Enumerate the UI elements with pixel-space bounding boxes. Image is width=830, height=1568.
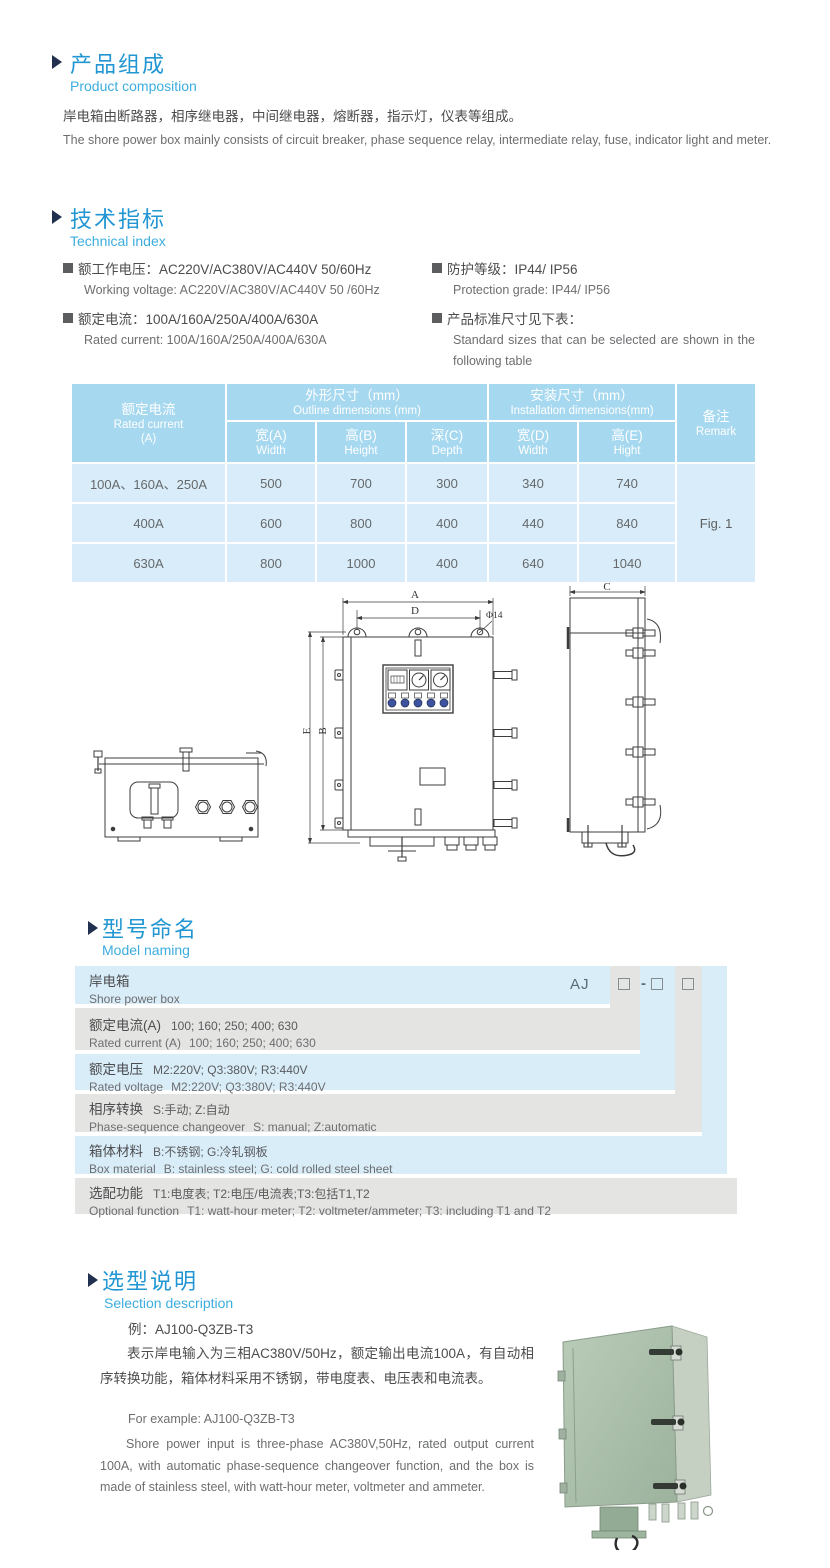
- section-title-technical-index: 技术指标: [70, 202, 166, 234]
- section-subtitle-model-naming: Model naming: [102, 942, 190, 958]
- dim-label-A: A: [411, 589, 419, 601]
- catalog-page: 产品组成 Product composition 岸电箱由断路器，相序继电器，中…: [0, 0, 830, 1568]
- dim-label-B: B: [317, 727, 329, 734]
- meter-panel-drawing: [383, 665, 453, 713]
- dimension-table: 额定电流 Rated current (A) 外形尺寸（mm） Outline …: [70, 382, 757, 584]
- bullet-square-icon: [63, 313, 73, 323]
- code-box: [618, 978, 630, 990]
- model-code-prefix: AJ: [570, 976, 590, 993]
- model-code-dash: -: [641, 975, 646, 992]
- sub-header-height-e: 高(E) Hight: [578, 421, 676, 463]
- dim-label-D: D: [411, 605, 419, 617]
- dim-label-hole: Φ14: [486, 611, 503, 621]
- code-connector-strip: [702, 966, 727, 1136]
- dim-label-C: C: [603, 581, 610, 593]
- spec-rated-current-en: Rated current: 100A/160A/250A/400A/630A: [84, 333, 327, 347]
- selection-example-en: For example: AJ100-Q3ZB-T3: [128, 1412, 295, 1426]
- dim-label-E: E: [301, 727, 313, 734]
- section-marker-icon: [88, 1273, 98, 1287]
- model-row-optional-function: 选配功能T1:电度表; T2:电压/电流表;T3:包括T1,T2 Optiona…: [75, 1178, 737, 1214]
- table-row: 100A、160A、250A 500 700 300 340 740 Fig. …: [71, 463, 756, 503]
- spec-working-voltage: 额工作电压：AC220V/AC380V/AC440V 50/60Hz: [63, 258, 371, 278]
- model-naming-diagram: 岸电箱 Shore power box 额定电流(A)100; 160; 250…: [75, 966, 755, 1214]
- bottom-view-drawing: [94, 748, 266, 841]
- model-row-rated-current: 额定电流(A)100; 160; 250; 400; 630 Rated cur…: [75, 1008, 640, 1050]
- section-subtitle-selection: Selection description: [104, 1295, 233, 1311]
- sub-header-width-d: 宽(D) Width: [488, 421, 578, 463]
- technical-drawing: A D Φ14 E B: [70, 581, 770, 889]
- code-box: [651, 978, 663, 990]
- sub-header-height-b: 高(B) Height: [316, 421, 406, 463]
- bullet-square-icon: [63, 263, 73, 273]
- selection-example-cn: 例：AJ100-Q3ZB-T3: [128, 1318, 253, 1338]
- spec-protection-grade: 防护等级：IP44/ IP56: [432, 258, 578, 278]
- col-header-installation-dimensions: 安装尺寸（mm） Installation dimensions(mm): [488, 383, 676, 421]
- model-row-rated-voltage: 额定电压M2:220V; Q3:380V; R3:440V Rated volt…: [75, 1054, 675, 1090]
- section-subtitle-product-composition: Product composition: [70, 78, 197, 94]
- spec-standard-sizes-en: Standard sizes that can be selected are …: [453, 330, 755, 372]
- section-title-model-naming: 型号命名: [102, 912, 198, 944]
- section-marker-icon: [88, 921, 98, 935]
- model-row-phase-sequence: 相序转换S:手动; Z:自动 Phase-sequence changeover…: [75, 1094, 702, 1132]
- bullet-square-icon: [432, 313, 442, 323]
- section-title-product-composition: 产品组成: [70, 47, 166, 79]
- section-subtitle-technical-index: Technical index: [70, 233, 166, 249]
- code-box: [682, 978, 694, 990]
- col-header-outline-dimensions: 外形尺寸（mm） Outline dimensions (mm): [226, 383, 488, 421]
- bullet-square-icon: [432, 263, 442, 273]
- spec-working-voltage-en: Working voltage: AC220V/AC380V/AC440V 50…: [84, 283, 380, 297]
- hinge: [558, 1371, 565, 1381]
- section-title-selection: 选型说明: [102, 1264, 198, 1296]
- product-composition-text-en: The shore power box mainly consists of c…: [63, 133, 773, 147]
- hinge: [560, 1483, 567, 1493]
- col-header-remark: 备注 Remark: [676, 383, 756, 463]
- spec-standard-sizes: 产品标准尺寸见下表：: [432, 308, 582, 328]
- selection-body-en: Shore power input is three-phase AC380V,…: [100, 1434, 534, 1499]
- spec-rated-current: 额定电流：100A/160A/250A/400A/630A: [63, 308, 318, 328]
- product-photo: [545, 1315, 745, 1550]
- remark-value: Fig. 1: [676, 463, 756, 583]
- product-composition-text-cn: 岸电箱由断路器，相序继电器，中间继电器，熔断器，指示灯，仪表等组成。: [63, 105, 763, 125]
- model-row-box-material: 箱体材料B:不锈钢; G:冷轧钢板 Box materialB: stainle…: [75, 1136, 727, 1174]
- hinge: [559, 1429, 566, 1439]
- table-row: 400A 600 800 400 440 840: [71, 503, 756, 543]
- front-view-drawing: [308, 598, 517, 861]
- section-marker-icon: [52, 55, 62, 69]
- sub-header-depth-c: 深(C) Depth: [406, 421, 488, 463]
- spec-protection-grade-en: Protection grade: IP44/ IP56: [453, 283, 610, 297]
- col-header-rated-current: 额定电流 Rated current (A): [71, 383, 226, 463]
- sub-header-width-a: 宽(A) Width: [226, 421, 316, 463]
- table-row: 630A 800 1000 400 640 1040: [71, 543, 756, 583]
- section-marker-icon: [52, 210, 62, 224]
- model-row-shore-power-box: 岸电箱 Shore power box: [75, 966, 610, 1004]
- selection-body-cn: 表示岸电输入为三相AC380V/50Hz，额定输出电流100A，有自动相序转换功…: [100, 1341, 534, 1391]
- side-view-drawing: [568, 586, 661, 856]
